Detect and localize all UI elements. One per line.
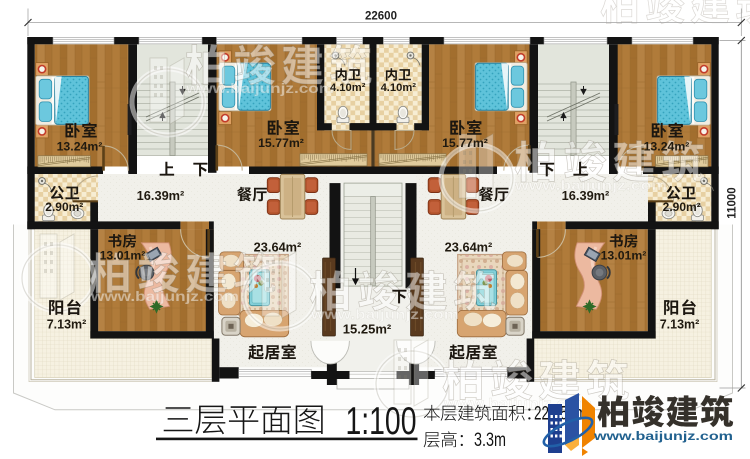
- svg-text:www.baijunjz.com: www.baijunjz.com: [185, 81, 334, 96]
- svg-text:15.25m²: 15.25m²: [343, 322, 392, 337]
- svg-text:11000: 11000: [727, 187, 739, 218]
- svg-text:13.01m²: 13.01m²: [601, 248, 647, 262]
- svg-text:7.13m²: 7.13m²: [47, 317, 87, 331]
- svg-text:13.24m²: 13.24m²: [644, 140, 690, 154]
- svg-text:1:100: 1:100: [346, 400, 417, 443]
- svg-text:22600: 22600: [365, 11, 397, 23]
- svg-text:www.baijunjz.com: www.baijunjz.com: [90, 289, 239, 304]
- svg-text:13.24m²: 13.24m²: [57, 140, 103, 154]
- svg-text:15.77m²: 15.77m²: [442, 136, 488, 150]
- svg-text:www.baijunjz.com: www.baijunjz.com: [310, 307, 459, 322]
- svg-text:16.39m²: 16.39m²: [562, 188, 610, 203]
- svg-text:13.01m²: 13.01m²: [100, 248, 146, 262]
- svg-text:4.10m²: 4.10m²: [381, 82, 417, 94]
- svg-text:2.90m²: 2.90m²: [45, 200, 83, 214]
- svg-text:15.77m²: 15.77m²: [258, 136, 304, 150]
- svg-text:16.39m²: 16.39m²: [137, 188, 185, 203]
- svg-text:7.13m²: 7.13m²: [660, 317, 700, 331]
- svg-text:4.10m²: 4.10m²: [330, 82, 366, 94]
- svg-text:23.64m²: 23.64m²: [254, 240, 302, 255]
- svg-text:2.90m²: 2.90m²: [663, 200, 701, 214]
- svg-text:3.3m: 3.3m: [474, 430, 506, 451]
- svg-text:www.baijunjz.com: www.baijunjz.com: [593, 430, 733, 443]
- svg-text:23.64m²: 23.64m²: [445, 240, 493, 255]
